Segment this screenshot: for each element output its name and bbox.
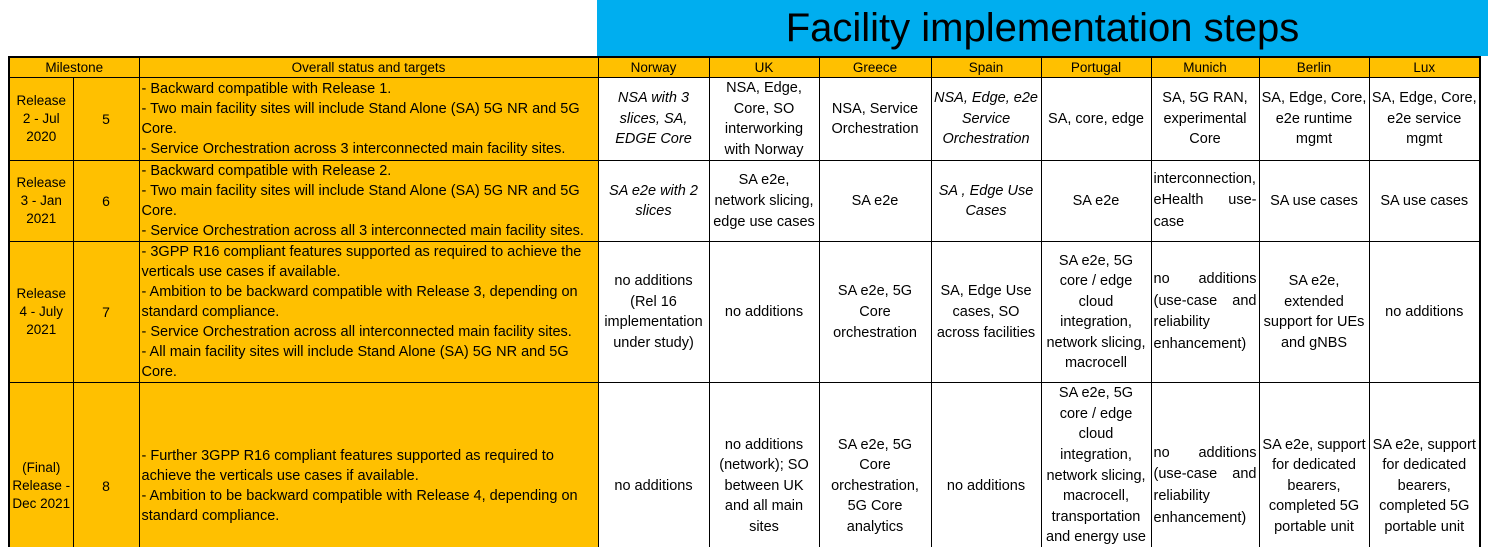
title-banner: Facility implementation steps (597, 0, 1488, 56)
status-header: Overall status and targets (139, 57, 598, 78)
release-label: Release 2 - Jul 2020 (9, 78, 73, 161)
site-cell-berlin: SA e2e, support for dedicated bearers, c… (1259, 383, 1369, 547)
table-row-release2: Release 2 - Jul 2020 5 - Backward compat… (9, 78, 1480, 161)
site-cell-norway: no additions (598, 383, 709, 547)
site-cell-munich: no additions (use-case and reliability e… (1151, 383, 1259, 547)
site-cell-spain: NSA, Edge, e2e Service Orchestration (931, 78, 1041, 161)
status-cell: - Backward compatible with Release 2. - … (139, 161, 598, 242)
release-label: Release 4 - July 2021 (9, 242, 73, 383)
site-cell-portugal: SA, core, edge (1041, 78, 1151, 161)
site-cell-lux: SA e2e, support for dedicated bearers, c… (1369, 383, 1480, 547)
milestone-value: 6 (73, 161, 139, 242)
site-cell-berlin: SA use cases (1259, 161, 1369, 242)
site-cell-uk: NSA, Edge, Core, SO interworking with No… (709, 78, 819, 161)
site-header-portugal: Portugal (1041, 57, 1151, 78)
slide: Facility implementation steps Milestone … (0, 0, 1488, 547)
site-cell-portugal: SA e2e, 5G core / edge cloud integration… (1041, 242, 1151, 383)
site-cell-norway: NSA with 3 slices, SA, EDGE Core (598, 78, 709, 161)
header-row: Milestone Overall status and targets Nor… (9, 57, 1480, 78)
status-cell: - Further 3GPP R16 compliant features su… (139, 383, 598, 547)
status-cell: - 3GPP R16 compliant features supported … (139, 242, 598, 383)
site-cell-norway: no additions (Rel 16 implementation unde… (598, 242, 709, 383)
site-cell-spain: no additions (931, 383, 1041, 547)
release-label: (Final) Release - Dec 2021 (9, 383, 73, 547)
milestone-value: 8 (73, 383, 139, 547)
site-cell-uk: no additions (network); SO between UK an… (709, 383, 819, 547)
site-cell-greece: NSA, Service Orchestration (819, 78, 931, 161)
site-cell-greece: SA e2e, 5G Core orchestration, 5G Core a… (819, 383, 931, 547)
facility-implementation-table: Milestone Overall status and targets Nor… (8, 56, 1481, 547)
site-cell-munich: no additions (use-case and reliability e… (1151, 242, 1259, 383)
table-row-release4: Release 4 - July 2021 7 - 3GPP R16 compl… (9, 242, 1480, 383)
site-header-munich: Munich (1151, 57, 1259, 78)
table-row-release3: Release 3 - Jan 2021 6 - Backward compat… (9, 161, 1480, 242)
site-cell-norway: SA e2e with 2 slices (598, 161, 709, 242)
site-cell-munich: interconnection, eHealth use-case (1151, 161, 1259, 242)
site-cell-spain: SA, Edge Use cases, SO across facilities (931, 242, 1041, 383)
milestone-value: 7 (73, 242, 139, 383)
site-header-spain: Spain (931, 57, 1041, 78)
milestone-value: 5 (73, 78, 139, 161)
site-cell-berlin: SA e2e, extended support for UEs and gNB… (1259, 242, 1369, 383)
site-cell-greece: SA e2e (819, 161, 931, 242)
site-cell-spain: SA , Edge Use Cases (931, 161, 1041, 242)
site-cell-uk: no additions (709, 242, 819, 383)
release-label: Release 3 - Jan 2021 (9, 161, 73, 242)
site-header-uk: UK (709, 57, 819, 78)
site-cell-lux: SA, Edge, Core, e2e service mgmt (1369, 78, 1480, 161)
site-cell-portugal: SA e2e (1041, 161, 1151, 242)
site-cell-lux: SA use cases (1369, 161, 1480, 242)
site-cell-uk: SA e2e, network slicing, edge use cases (709, 161, 819, 242)
milestone-header: Milestone (9, 57, 139, 78)
site-cell-portugal: SA e2e, 5G core / edge cloud integration… (1041, 383, 1151, 547)
site-cell-lux: no additions (1369, 242, 1480, 383)
site-cell-berlin: SA, Edge, Core, e2e runtime mgmt (1259, 78, 1369, 161)
site-header-berlin: Berlin (1259, 57, 1369, 78)
site-cell-munich: SA, 5G RAN, experimental Core (1151, 78, 1259, 161)
table-row-final-release: (Final) Release - Dec 2021 8 - Further 3… (9, 383, 1480, 547)
site-cell-greece: SA e2e, 5G Core orchestration (819, 242, 931, 383)
site-header-lux: Lux (1369, 57, 1480, 78)
status-cell: - Backward compatible with Release 1. - … (139, 78, 598, 161)
page-title: Facility implementation steps (786, 6, 1300, 51)
site-header-greece: Greece (819, 57, 931, 78)
site-header-norway: Norway (598, 57, 709, 78)
